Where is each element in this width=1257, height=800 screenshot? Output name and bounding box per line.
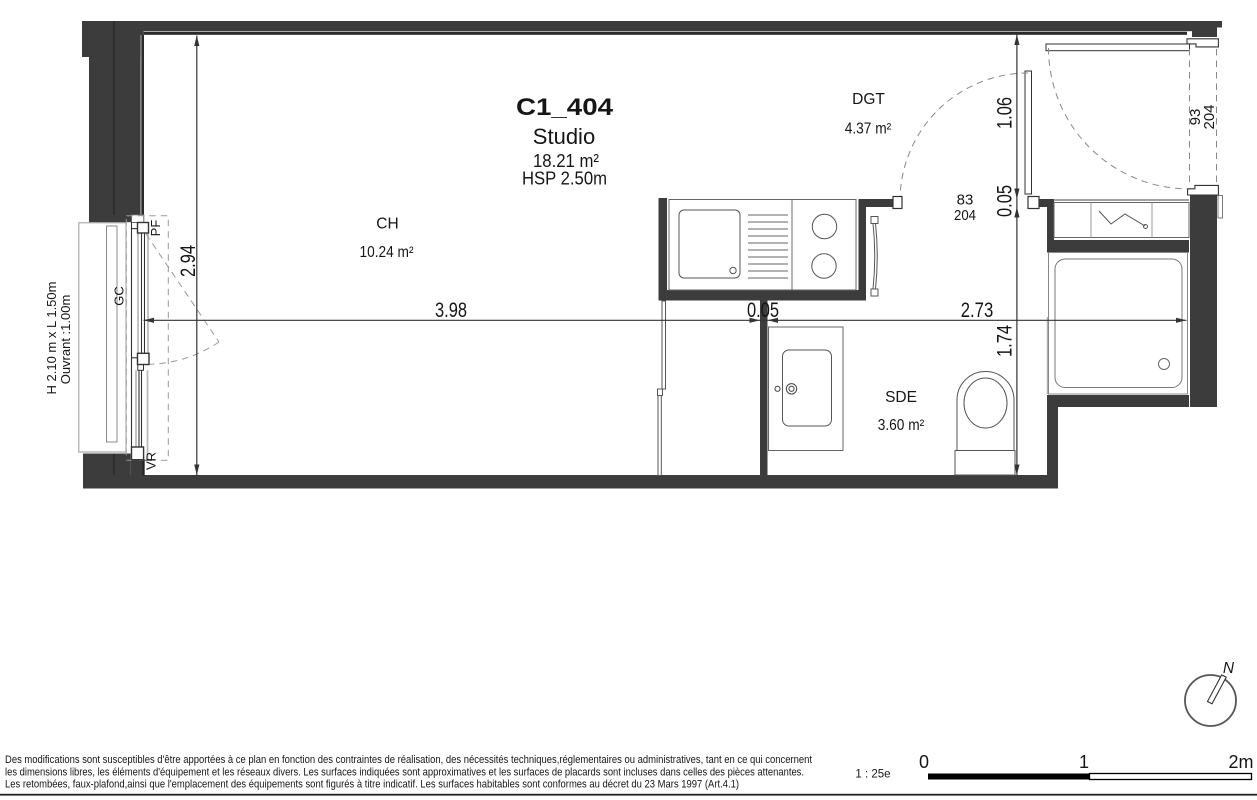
svg-text:1.74: 1.74 <box>994 325 1017 357</box>
svg-text:Ouvrant :1.00m: Ouvrant :1.00m <box>58 295 73 385</box>
svg-text:204: 204 <box>954 207 976 224</box>
svg-text:10.24 m²: 10.24 m² <box>360 244 414 261</box>
svg-text:83: 83 <box>957 192 974 209</box>
svg-text:Studio: Studio <box>533 124 595 149</box>
svg-text:HSP 2.50m: HSP 2.50m <box>522 168 607 189</box>
svg-text:1 : 25e: 1 : 25e <box>855 769 890 781</box>
svg-text:3.98: 3.98 <box>435 299 467 322</box>
svg-text:2.73: 2.73 <box>961 299 994 322</box>
svg-text:CH: CH <box>376 216 398 233</box>
svg-text:0: 0 <box>919 752 929 772</box>
svg-text:2m: 2m <box>1228 752 1253 772</box>
svg-text:C1_404: C1_404 <box>516 94 613 121</box>
svg-text:GC: GC <box>112 286 127 306</box>
svg-text:les dimensions libres, les élé: les dimensions libres, les éléments d'éq… <box>5 767 804 779</box>
svg-text:Les retombées, faux-plafond,ai: Les retombées, faux-plafond,ainsi que l'… <box>5 779 739 791</box>
svg-text:1: 1 <box>1079 752 1089 772</box>
svg-text:4.37 m²: 4.37 m² <box>845 121 892 138</box>
svg-text:N: N <box>1223 660 1235 677</box>
svg-text:VR: VR <box>144 452 159 470</box>
svg-text:H 2.10 m x L 1.50m: H 2.10 m x L 1.50m <box>44 282 59 395</box>
svg-text:204: 204 <box>1201 104 1218 129</box>
svg-text:0.05: 0.05 <box>994 185 1017 217</box>
svg-text:3.60 m²: 3.60 m² <box>878 417 925 434</box>
svg-text:1.06: 1.06 <box>994 97 1017 129</box>
svg-text:Des modifications sont suscept: Des modifications sont susceptibles d'êt… <box>5 754 812 766</box>
svg-text:DGT: DGT <box>852 91 885 108</box>
svg-text:SDE: SDE <box>885 389 917 406</box>
svg-text:2.94: 2.94 <box>177 245 200 277</box>
svg-text:0.05: 0.05 <box>747 299 779 322</box>
svg-text:PF: PF <box>148 220 163 237</box>
